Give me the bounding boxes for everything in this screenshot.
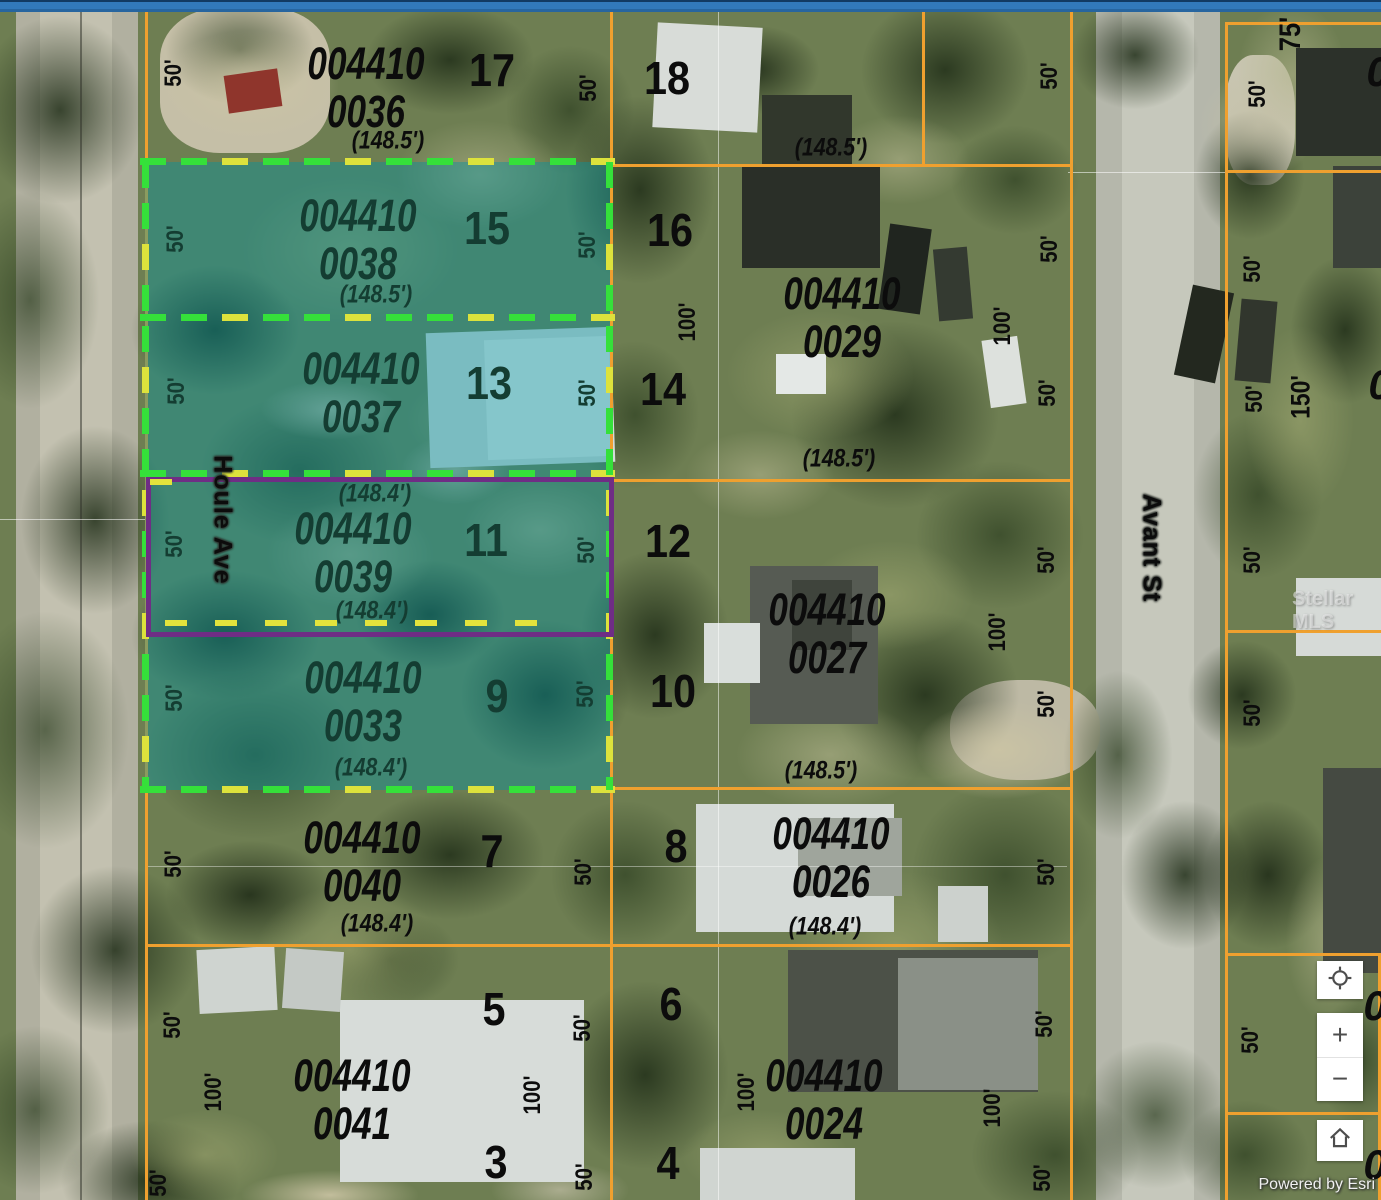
selected-parcel-bottom-ticks [165,620,545,626]
zoom-in-button[interactable]: + [1317,1013,1363,1057]
top-blue-bar [0,0,1381,12]
parcel-0038-top-dash [140,158,615,165]
selected-parcel-outline[interactable] [146,477,614,637]
selected-parcel-top-tick [150,479,195,485]
locate-icon [1327,965,1353,996]
locate-button[interactable] [1317,961,1363,999]
esri-attribution: Powered by Esri [1259,1176,1376,1194]
parcel-0037-top-dash [140,314,615,321]
zoom-out-button[interactable]: − [1317,1058,1363,1102]
home-button[interactable] [1317,1120,1363,1161]
highlight-left-dash [142,162,149,790]
highlight-right-dash [606,162,613,790]
zoom-controls: + − [1317,1013,1363,1101]
map-viewport[interactable]: 004410 0036004410 0038004410 0037004410 … [0,0,1381,1200]
parcel-0033-bottom-dash [140,786,615,793]
home-icon [1327,1125,1353,1156]
stellar-mls-watermark: Stellar MLS [1292,588,1381,634]
parcel-0039-top-dash [140,470,615,477]
